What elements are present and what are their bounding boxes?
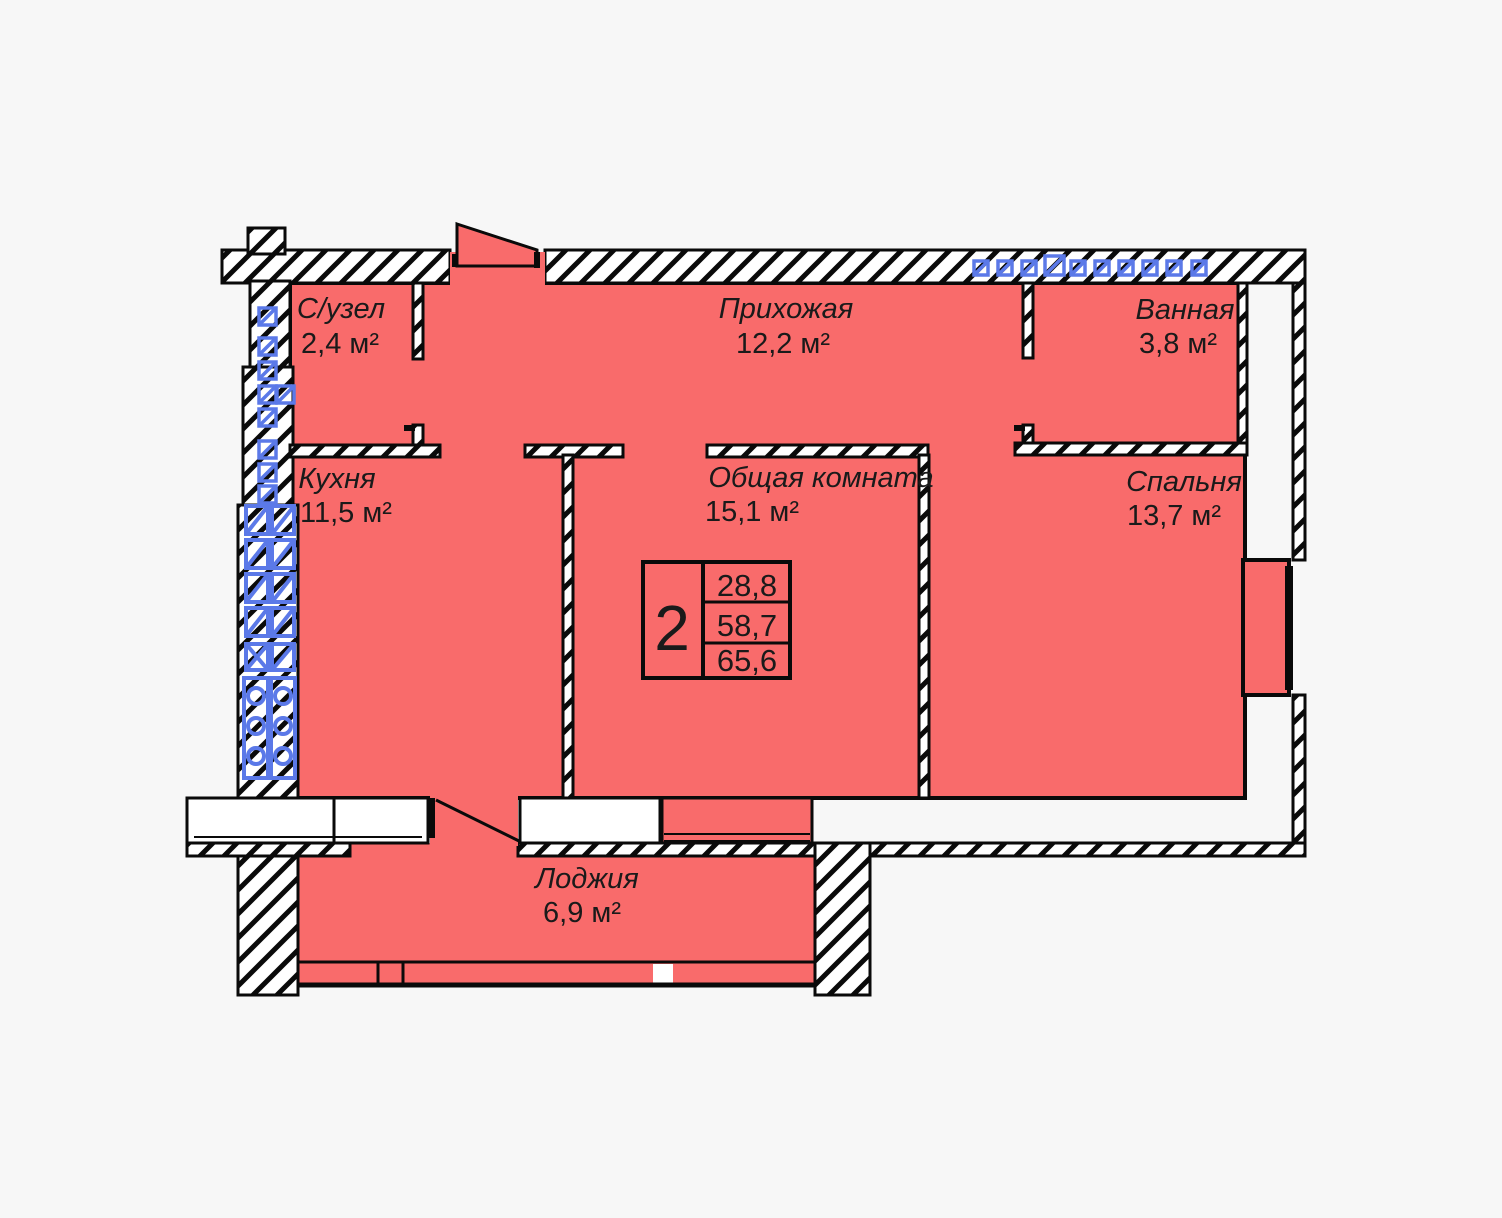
wall-commonroom-top — [707, 445, 928, 457]
room-name-spalnya: Спальня — [1126, 466, 1242, 498]
room-name-szuel: С/узел — [297, 293, 385, 325]
parapet-gap — [653, 964, 673, 983]
room-name-vannaya: Ванная — [1135, 294, 1234, 326]
room-name-obshchaya: Общая комната — [708, 462, 933, 494]
room-name-prihozhaya: Прихожая — [719, 293, 854, 325]
wall-outer-right-lower — [1293, 695, 1305, 855]
legend-total-area: 65,6 — [717, 643, 777, 678]
bay-window-niche — [1243, 560, 1289, 695]
wall-kitchen-stem — [563, 455, 573, 798]
room-area-prihozhaya: 12,2 м² — [736, 328, 830, 360]
room-area-szuel: 2,4 м² — [301, 328, 379, 360]
room-name-kuhnya: Кухня — [298, 463, 375, 495]
wall-vannaya-right — [1238, 283, 1247, 443]
wall-commonroom-right — [919, 455, 929, 798]
floor-plan-canvas: С/узел 2,4 м² Прихожая 12,2 м² Ванная 3,… — [0, 0, 1502, 1218]
room-area-kuhnya: 11,5 м² — [300, 497, 392, 529]
wall-outer-right-upper — [1293, 283, 1305, 560]
legend-rooms-count: 2 — [654, 592, 690, 664]
wall-bottom-left-band — [187, 843, 350, 856]
room-area-obshchaya: 15,1 м² — [705, 496, 799, 528]
wall-bottom-right-band — [870, 843, 1305, 856]
wall-bottom-mid-band — [518, 843, 815, 856]
legend-usable-area: 58,7 — [717, 608, 777, 643]
wall-vannaya-left — [1023, 283, 1033, 358]
floor-plan-svg: С/узел 2,4 м² Прихожая 12,2 м² Ванная 3,… — [0, 0, 1502, 1218]
wall-top-stub — [248, 228, 285, 254]
wall-below-szuel — [290, 445, 440, 457]
room-name-lodzhiya: Лоджия — [533, 863, 639, 895]
apartment-floor — [290, 283, 1245, 798]
wall-loggia-right-block — [815, 843, 870, 995]
wall-szuel-right — [413, 283, 423, 359]
commonroom-window — [520, 798, 660, 843]
room-area-spalnya: 13,7 м² — [1127, 500, 1221, 532]
loggia-glazed-unit — [662, 798, 812, 843]
legend-living-area: 28,8 — [717, 568, 777, 603]
room-area-vannaya: 3,8 м² — [1139, 328, 1217, 360]
room-area-lodzhiya: 6,9 м² — [543, 897, 621, 929]
wall-bedroom-top — [1015, 443, 1247, 455]
